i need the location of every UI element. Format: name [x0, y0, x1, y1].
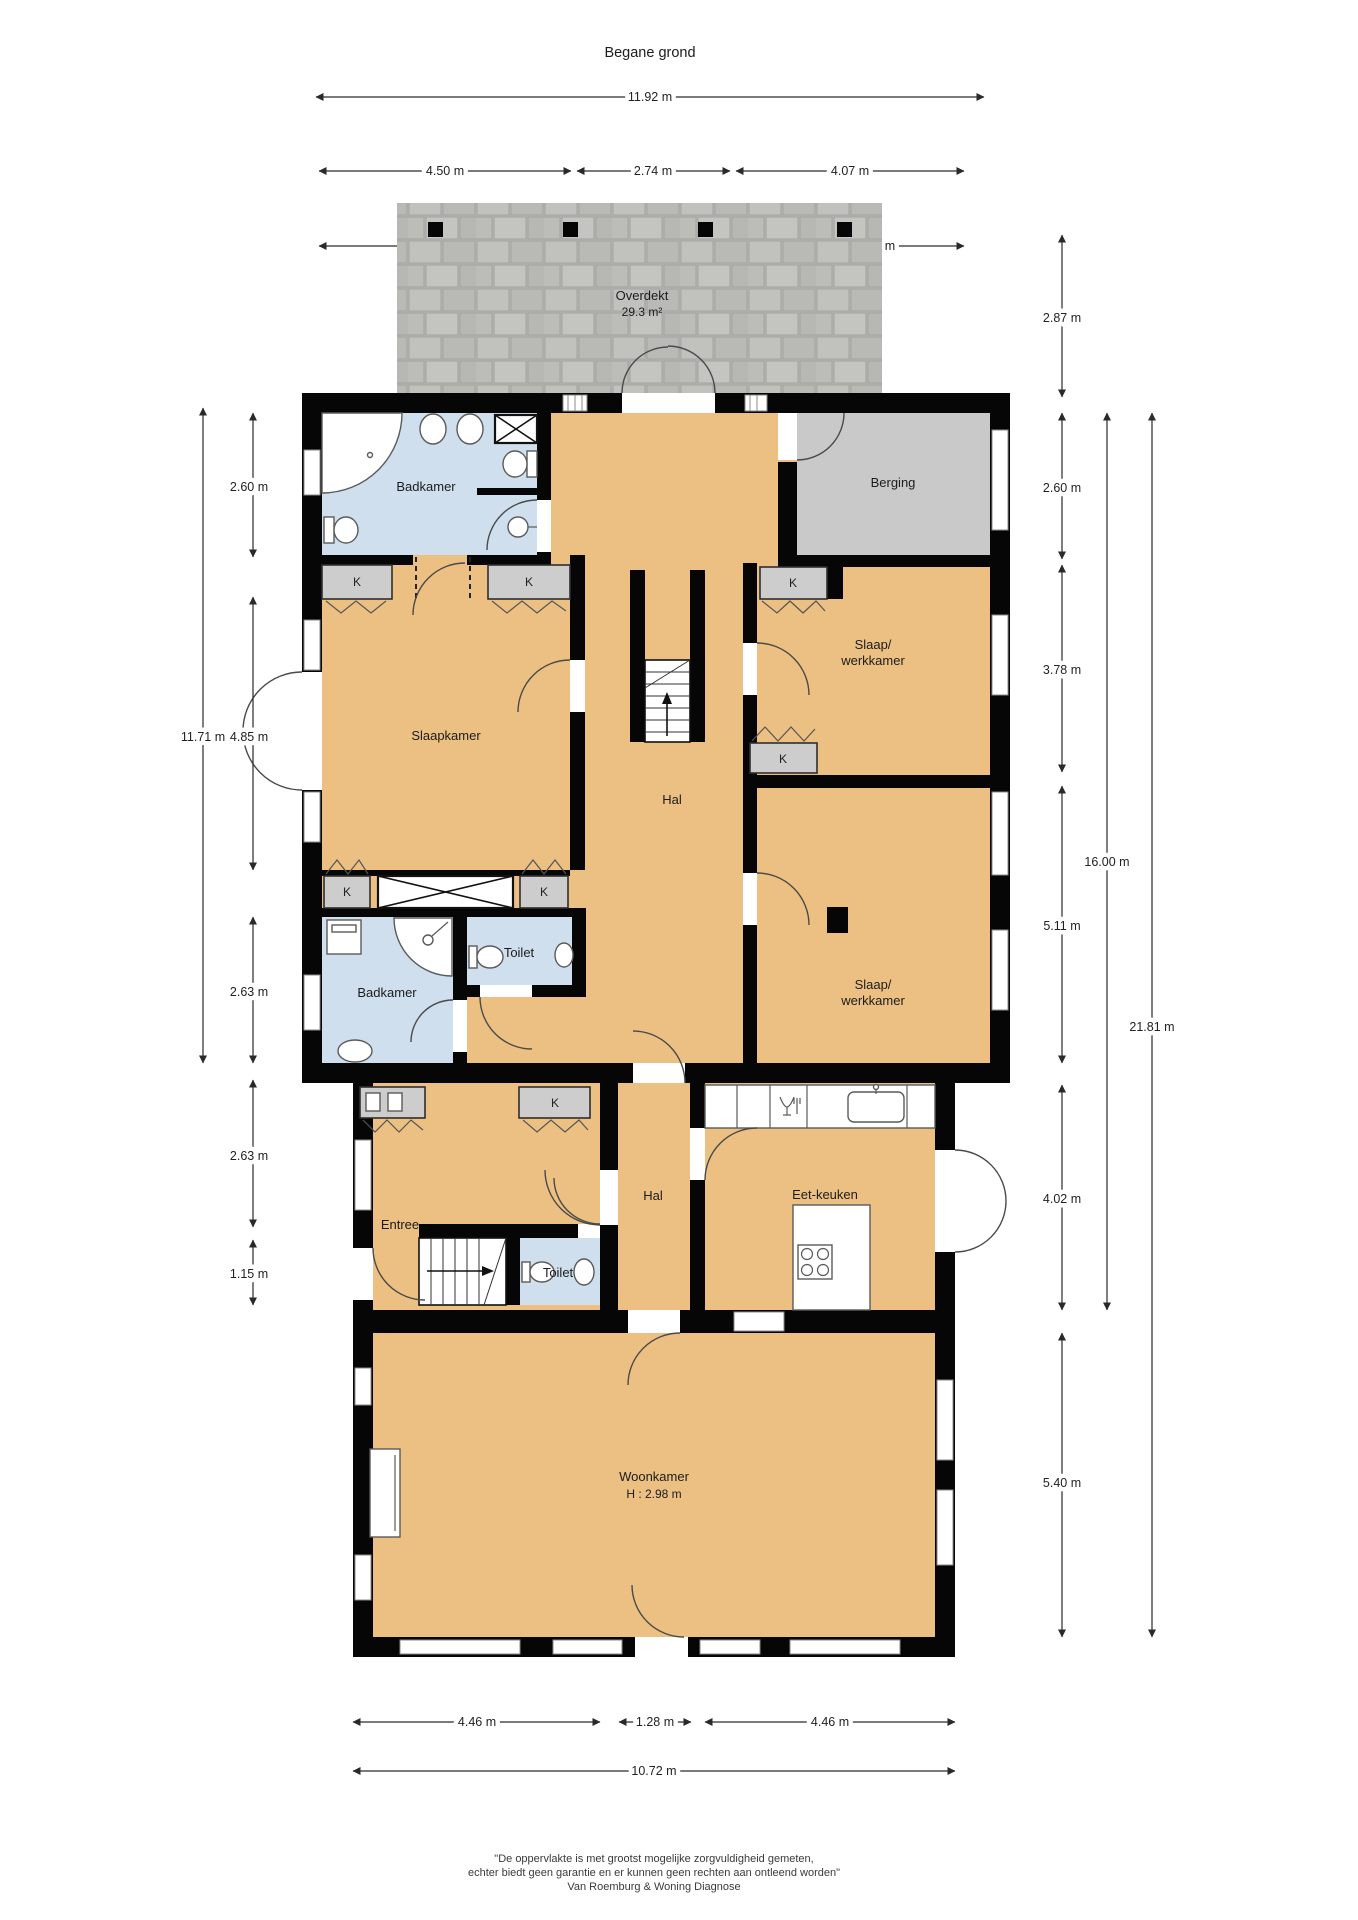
wash-basin: [555, 943, 573, 967]
hal-lower-label: Hal: [643, 1188, 663, 1203]
overdekt-label: Overdekt: [616, 288, 669, 303]
dim-top-c: 4.07 m: [831, 164, 869, 178]
left-dimensions: 11.71 m 2.60 m 4.85 m 2.63 m 2.63 m 1.15…: [181, 408, 268, 1305]
stairs-upper: [645, 660, 690, 742]
footer-disclaimer: "De oppervlakte is met grootst mogelijke…: [468, 1853, 840, 1893]
dim-left-c: 2.63 m: [230, 985, 268, 999]
slaapwerk2-label-line1: Slaap/: [855, 977, 892, 992]
badkamer-mid-label: Badkamer: [357, 985, 417, 1000]
stove-block: [827, 907, 848, 933]
dim-right-middle: 16.00 m: [1084, 855, 1129, 869]
toilet: [527, 451, 537, 477]
floorplan-page: Begane grond 11.92 m 4.50 m 2.74 m 4.07 …: [0, 0, 1358, 1920]
footer-line2: echter biedt geen garantie en er kunnen …: [468, 1867, 840, 1879]
bottom-dimensions: 4.46 m 1.28 m 4.46 m 10.72 m: [353, 1715, 955, 1778]
dim-right-a: 2.87 m: [1043, 311, 1081, 325]
terrace-post: [698, 222, 713, 237]
footer-line1: "De oppervlakte is met grootst mogelijke…: [494, 1853, 813, 1865]
right-dimensions: 2.87 m 2.60 m 3.78 m 5.11 m 4.02 m 5.40 …: [1043, 235, 1175, 1637]
dim-bottom-b: 1.28 m: [636, 1715, 674, 1729]
woonkamer-height-label: H : 2.98 m: [626, 1487, 681, 1501]
toilet-lower-label: Toilet: [543, 1265, 574, 1280]
closet-label: K: [353, 575, 361, 589]
wash-basin: [508, 517, 528, 537]
dim-left-b: 4.85 m: [230, 730, 268, 744]
eetkeuken-label: Eet-keuken: [792, 1187, 858, 1202]
dim-right-f: 5.40 m: [1043, 1476, 1081, 1490]
sink: [457, 414, 483, 444]
closet-label: K: [525, 575, 533, 589]
kitchen-sink: [848, 1092, 904, 1122]
terrace-post: [563, 222, 578, 237]
dim-bottom-total: 10.72 m: [631, 1764, 676, 1778]
dim-left-a: 2.60 m: [230, 480, 268, 494]
toilet: [469, 946, 477, 968]
closet-label: K: [551, 1096, 559, 1110]
entree-label: Entree: [381, 1217, 419, 1232]
dim-top-a: 4.50 m: [426, 164, 464, 178]
dim-right-d: 5.11 m: [1043, 919, 1080, 933]
dim-bottom-c: 4.46 m: [811, 1715, 849, 1729]
closet-label: K: [779, 752, 787, 766]
closet-label: K: [540, 885, 548, 899]
slaapkamer-label: Slaapkamer: [411, 728, 481, 743]
dim-top-total: 11.92 m: [628, 90, 672, 104]
dim-right-b: 2.60 m: [1043, 481, 1081, 495]
lower-floor: [373, 1083, 935, 1637]
sink: [338, 1040, 372, 1062]
floorplan-drawing: Begane grond 11.92 m 4.50 m 2.74 m 4.07 …: [0, 0, 1358, 1920]
slaapwerk1-label-line2: werkkamer: [840, 653, 905, 668]
dim-left-e: 1.15 m: [230, 1267, 268, 1281]
dim-left-total: 11.71 m: [181, 730, 225, 744]
badkamer-top-label: Badkamer: [396, 479, 456, 494]
closet-label: K: [343, 885, 351, 899]
terrace-post: [428, 222, 443, 237]
wash-basin: [574, 1259, 594, 1285]
berging-label: Berging: [871, 475, 916, 490]
dim-top-b: 2.74 m: [634, 164, 672, 178]
dim-right-c: 3.78 m: [1043, 663, 1081, 677]
dim-left-d: 2.63 m: [230, 1149, 268, 1163]
page-title: Begane grond: [604, 45, 695, 61]
toilet: [324, 517, 334, 543]
dim-right-e: 4.02 m: [1043, 1192, 1081, 1206]
slaapwerk1-label-line1: Slaap/: [855, 637, 892, 652]
terrace-post: [837, 222, 852, 237]
woonkamer-label: Woonkamer: [619, 1469, 690, 1484]
footer-line3: Van Roemburg & Woning Diagnose: [567, 1881, 740, 1893]
sink: [420, 414, 446, 444]
toilet: [522, 1262, 530, 1282]
stairs-lower: [419, 1238, 506, 1305]
dim-bottom-a: 4.46 m: [458, 1715, 496, 1729]
overdekt-area-value: 29.3 m²: [622, 305, 663, 319]
dim-right-total: 21.81 m: [1129, 1020, 1174, 1034]
slaapwerk2-label-line2: werkkamer: [840, 993, 905, 1008]
toilet-upper-label: Toilet: [504, 945, 535, 960]
hal-upper-label: Hal: [662, 792, 682, 807]
overdekt-area: Overdekt 29.3 m²: [397, 203, 882, 393]
room-floors: [322, 413, 990, 1637]
closet-label: K: [789, 576, 797, 590]
